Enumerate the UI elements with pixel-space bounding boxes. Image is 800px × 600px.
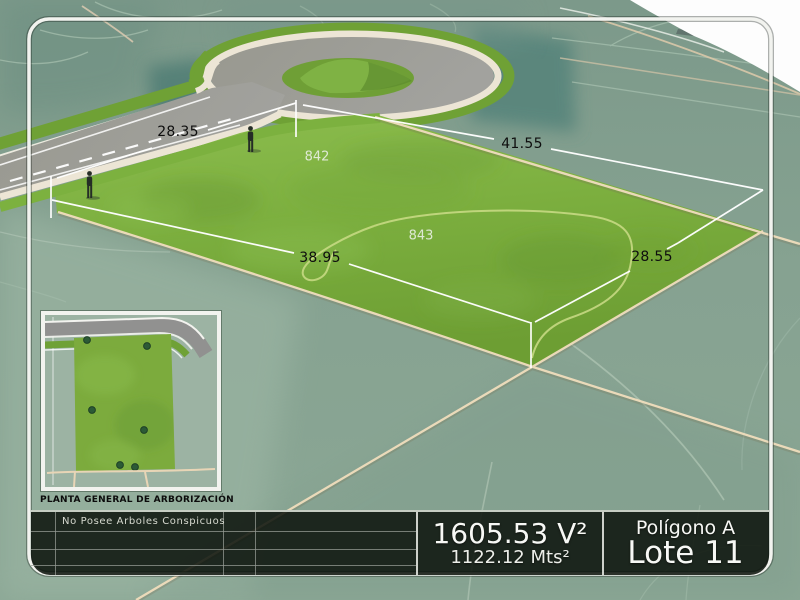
area-varas: 1605.53 V² bbox=[432, 519, 587, 548]
elevation-label-842: 842 bbox=[305, 150, 330, 165]
elevation-label-843: 843 bbox=[409, 229, 434, 244]
dimension-label-rear: 41.55 bbox=[501, 136, 543, 152]
planting-plan-map bbox=[45, 315, 217, 487]
inset-caption: PLANTA GENERAL DE ARBORIZACIÓN bbox=[40, 495, 270, 505]
area-meters: 1122.12 Mts² bbox=[450, 548, 569, 568]
dimension-label-frontage: 28.35 bbox=[157, 124, 199, 140]
dimension-label-side-right: 28.55 bbox=[631, 249, 673, 265]
roundabout-island bbox=[282, 58, 414, 98]
lot-id-section: Polígono A Lote 11 bbox=[604, 512, 767, 575]
lot-name: Lote 11 bbox=[627, 538, 743, 569]
tree-note: No Posee Arboles Conspicuos bbox=[62, 516, 225, 527]
planting-plan-inset bbox=[41, 311, 221, 491]
lot-visualization: 28.35 41.55 38.95 28.55 842 843 bbox=[0, 0, 800, 600]
area-section: 1605.53 V² 1122.12 Mts² bbox=[418, 512, 602, 575]
notes-table: No Posee Arboles Conspicuos bbox=[31, 512, 416, 575]
dimension-label-side-left: 38.95 bbox=[299, 250, 341, 266]
info-bar: No Posee Arboles Conspicuos 1605.53 V² 1… bbox=[31, 510, 769, 575]
